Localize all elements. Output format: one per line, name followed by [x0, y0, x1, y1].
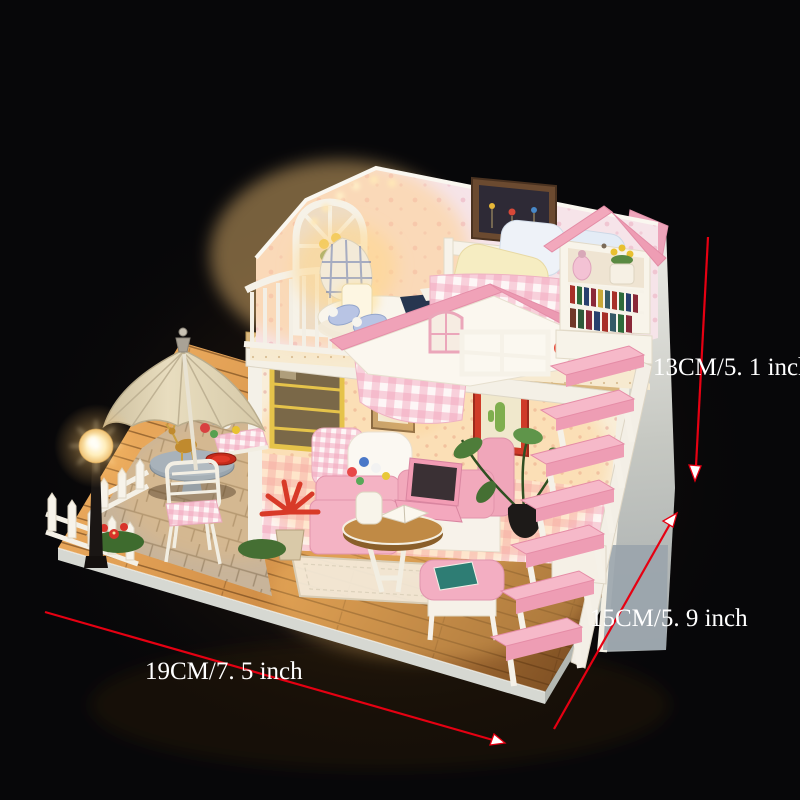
lamp-base	[84, 556, 108, 568]
book-spine	[602, 312, 608, 332]
red-flower	[120, 523, 128, 531]
book-spine	[633, 294, 638, 313]
light-bulb	[370, 176, 378, 184]
light-bulb	[336, 192, 344, 200]
bed-post	[444, 238, 453, 276]
dollhouse-scene: 13CM/5. 1 inch 15CM/5. 9 inch 19CM/7. 5 …	[0, 0, 800, 800]
finial	[176, 338, 190, 352]
book-spine	[591, 288, 596, 307]
book-spine	[626, 315, 632, 333]
book-spine	[605, 290, 610, 309]
book-spine	[612, 291, 617, 310]
book-spine	[598, 289, 603, 308]
picket	[136, 459, 144, 489]
grass	[238, 539, 286, 559]
book-spine	[584, 287, 589, 306]
flower	[347, 467, 357, 477]
flower	[382, 472, 390, 480]
perfume-doll	[573, 256, 591, 280]
book-spine	[578, 309, 584, 329]
finial-ball	[179, 328, 187, 336]
cactus-art	[495, 402, 505, 432]
chair-cushion	[166, 500, 222, 526]
flower-jug	[356, 492, 382, 524]
slipper-trim	[352, 317, 362, 327]
book-spine	[577, 286, 582, 305]
product-photo: 13CM/5. 1 inch 15CM/5. 9 inch 19CM/7. 5 …	[0, 0, 800, 800]
cactus-arm	[488, 410, 494, 422]
flower	[359, 457, 369, 467]
light-bulb	[388, 179, 396, 187]
art-dot	[509, 209, 516, 216]
book-spine	[618, 314, 624, 333]
book-spine	[586, 310, 592, 330]
light-bulb	[352, 182, 360, 190]
deer-head	[169, 428, 176, 435]
flower-center	[113, 532, 116, 535]
lace-pot	[610, 264, 634, 284]
art-dot	[489, 203, 495, 209]
flower	[210, 430, 218, 438]
lamp-core	[87, 436, 99, 448]
flower	[232, 426, 240, 434]
laptop-screen	[411, 463, 457, 501]
picket	[68, 500, 76, 538]
gable-hole	[602, 244, 607, 249]
flower	[200, 423, 210, 433]
art-dot	[531, 207, 537, 213]
flower	[356, 477, 364, 485]
flower	[371, 463, 381, 473]
picket	[48, 493, 56, 531]
slipper-trim	[328, 307, 338, 317]
book-spine	[594, 311, 600, 331]
book-spine	[570, 285, 575, 304]
light-bulb	[310, 218, 318, 226]
book-spine	[610, 313, 616, 332]
width-label: 19CM/7. 5 inch	[145, 658, 303, 685]
yellow-flower	[611, 249, 618, 256]
book-spine	[570, 308, 576, 328]
depth-label: 15CM/5. 9 inch	[590, 605, 748, 632]
height-label: 13CM/5. 1 inch	[653, 354, 800, 381]
book-spine	[626, 293, 631, 312]
loft-front-railing	[462, 332, 548, 374]
yellow-flower	[619, 245, 626, 252]
light-bulb	[322, 204, 330, 212]
book-spine	[619, 292, 624, 311]
right-wall-lower-panel	[603, 545, 668, 650]
doll-head	[578, 250, 586, 258]
